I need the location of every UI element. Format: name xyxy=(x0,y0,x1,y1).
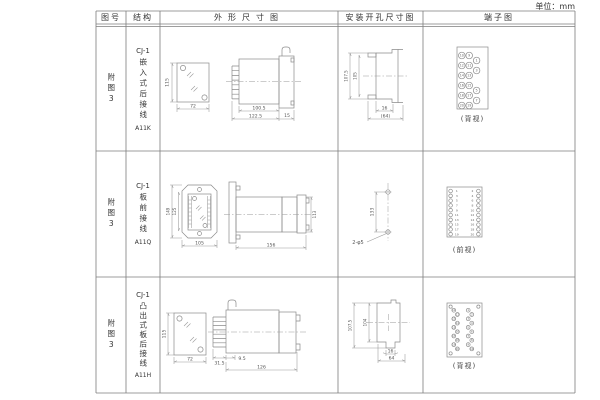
svg-text:7: 7 xyxy=(476,99,478,103)
svg-text:17: 17 xyxy=(467,94,471,98)
header-outline: 外形尺寸图 xyxy=(160,11,338,24)
row3-terminal-caption: (背视) xyxy=(453,361,476,370)
dim-row2-outer-height: 149 xyxy=(166,207,171,215)
svg-text:14: 14 xyxy=(460,74,464,78)
svg-text:19: 19 xyxy=(455,232,459,236)
dim-row1-flange-width: 15 xyxy=(284,113,290,119)
dim-row1-cutout-inner-height: 105 xyxy=(353,72,358,80)
svg-text:18: 18 xyxy=(470,228,474,232)
header-fig-no: 图号 xyxy=(96,11,126,24)
svg-text:12: 12 xyxy=(460,64,464,68)
dim-row3-body-length: 126 xyxy=(257,365,266,371)
svg-text:19: 19 xyxy=(452,343,456,347)
row1-structure: CJ-1 嵌入式后接线 A11K xyxy=(126,27,160,151)
datasheet-page: 单位：mm 图号 结构 外形尺寸图 安装开孔尺寸图 端子图 附图3 CJ-1 嵌… xyxy=(0,0,600,400)
row1-terminal-diagram: 109121114131615181720191357 (背视) xyxy=(423,27,575,151)
svg-text:13: 13 xyxy=(467,74,471,78)
svg-text:16: 16 xyxy=(460,84,464,88)
svg-text:9: 9 xyxy=(456,208,458,212)
svg-text:7: 7 xyxy=(456,204,458,208)
svg-text:13: 13 xyxy=(455,218,459,222)
svg-text:20: 20 xyxy=(470,232,474,236)
terminal-grid-1: 109121114131615181720191357 xyxy=(459,52,480,109)
dim-row2-front-width: 105 xyxy=(195,241,204,247)
row2-terminal-diagram: 1357911131517192468101214161820 (前视) xyxy=(423,151,575,277)
svg-text:19: 19 xyxy=(467,104,471,108)
svg-text:2: 2 xyxy=(471,189,473,193)
svg-text:20: 20 xyxy=(460,104,464,108)
svg-text:3: 3 xyxy=(456,194,458,198)
svg-text:6: 6 xyxy=(471,199,473,203)
row3-terminal-diagram: 1112131415161718192012345678910 (背视) xyxy=(423,277,575,393)
dim-row3-front-width: 72 xyxy=(187,357,193,363)
row2-series: CJ-1 xyxy=(136,182,150,190)
row2-fig-no-text: 附图3 xyxy=(107,198,115,231)
row2-structure-text: 板前接线 xyxy=(139,193,147,235)
svg-text:10: 10 xyxy=(470,347,474,351)
dim-row1-front-height: 115 xyxy=(165,78,171,87)
dim-row1-cutout-width: (64) xyxy=(381,114,391,120)
svg-text:14: 14 xyxy=(470,218,474,222)
row3-fig-no: 附图3 xyxy=(96,277,126,393)
dim-row1-notch-width: 16 xyxy=(382,106,388,112)
dim-row1-total-length: 122.5 xyxy=(249,114,262,120)
dim-row2-hole-spacing: 133 xyxy=(370,208,376,217)
dim-row3-cutout-outer-height: 107.5 xyxy=(348,319,353,331)
header-terminal: 端子图 xyxy=(423,11,575,24)
svg-text:17: 17 xyxy=(452,334,456,338)
dim-row3-cutout-width: 64 xyxy=(389,356,395,362)
svg-text:11: 11 xyxy=(452,308,456,312)
row1-fig-no: 附图3 xyxy=(96,27,126,151)
row1-outline-drawing: 115 72 100.5 122.5 15 xyxy=(160,27,338,151)
terminal-grid-3: 1112131415161718192012345678910 xyxy=(449,305,480,355)
svg-text:17: 17 xyxy=(455,228,459,232)
dim-row2-inner-height: 125 xyxy=(172,207,177,215)
dim-row3-step: 9.5 xyxy=(238,356,245,362)
row1-mounting-drawing: 107.5 105 16 (64) xyxy=(338,27,423,151)
row3-structure: CJ-1 凸出式板后接线 A11H xyxy=(126,277,160,393)
terminal-grid-2: 1357911131517192468101214161820 xyxy=(449,189,480,236)
dim-row3-notch-width: 16 xyxy=(388,349,394,355)
dim-row2-side-length: 156 xyxy=(267,243,276,249)
row2-mounting-drawing: 133 2-φ5 xyxy=(338,151,423,277)
svg-text:12: 12 xyxy=(470,213,474,217)
svg-text:14: 14 xyxy=(456,321,460,325)
row1-structure-text: 嵌入式后接线 xyxy=(139,58,147,121)
svg-text:18: 18 xyxy=(456,338,460,342)
svg-text:10: 10 xyxy=(470,208,474,212)
svg-text:16: 16 xyxy=(456,330,460,334)
dim-row3-front-height: 115 xyxy=(162,330,168,339)
row1-model: A11K xyxy=(135,125,151,132)
row3-series: CJ-1 xyxy=(136,291,150,299)
svg-text:15: 15 xyxy=(455,223,459,227)
svg-text:15: 15 xyxy=(467,84,471,88)
row2-fig-no: 附图3 xyxy=(96,151,126,277)
row2-model: A11Q xyxy=(135,239,151,246)
svg-text:11: 11 xyxy=(467,64,471,68)
row3-outline-drawing: 115 72 31.5 9.5 126 xyxy=(160,277,338,393)
svg-text:10: 10 xyxy=(460,54,464,58)
svg-text:12: 12 xyxy=(456,312,460,316)
svg-text:1: 1 xyxy=(476,59,478,63)
row3-fig-no-text: 附图3 xyxy=(107,319,115,352)
row3-mounting-drawing: 107.5 104 16 64 xyxy=(338,277,423,393)
svg-text:8: 8 xyxy=(471,204,473,208)
dim-row3-rear-depth: 31.5 xyxy=(214,361,224,367)
dim-row1-cutout-outer-height: 107.5 xyxy=(344,70,349,82)
row2-structure: CJ-1 板前接线 A11Q xyxy=(126,151,160,277)
svg-text:15: 15 xyxy=(452,325,456,329)
svg-text:5: 5 xyxy=(456,199,458,203)
row1-fig-no-text: 附图3 xyxy=(107,73,115,106)
dim-row1-front-width: 72 xyxy=(190,104,196,110)
svg-text:1: 1 xyxy=(456,189,458,193)
svg-text:20: 20 xyxy=(456,347,460,351)
svg-text:16: 16 xyxy=(470,223,474,227)
row1-terminal-caption: (背视) xyxy=(461,114,484,123)
header-mounting: 安装开孔尺寸图 xyxy=(338,11,423,24)
row1-series: CJ-1 xyxy=(136,47,150,55)
row2-outline-drawing: 149 125 105 156 113 xyxy=(160,151,338,277)
dim-row1-body-length: 100.5 xyxy=(252,106,265,112)
svg-text:4: 4 xyxy=(471,194,473,198)
svg-text:5: 5 xyxy=(476,89,478,93)
row2-terminal-caption: (前视) xyxy=(453,245,476,254)
header-structure: 结构 xyxy=(126,11,160,24)
svg-text:9: 9 xyxy=(468,54,470,58)
row3-structure-text: 凸出式板后接线 xyxy=(139,302,147,369)
dim-row2-side-height: 113 xyxy=(312,210,317,218)
dim-row2-hole-spec: 2-φ5 xyxy=(352,240,363,246)
svg-text:18: 18 xyxy=(460,94,464,98)
svg-text:3: 3 xyxy=(476,69,478,73)
row3-model: A11H xyxy=(135,372,151,379)
dim-row3-cutout-inner-height: 104 xyxy=(363,318,368,326)
svg-text:11: 11 xyxy=(455,213,459,217)
svg-text:13: 13 xyxy=(452,317,456,321)
